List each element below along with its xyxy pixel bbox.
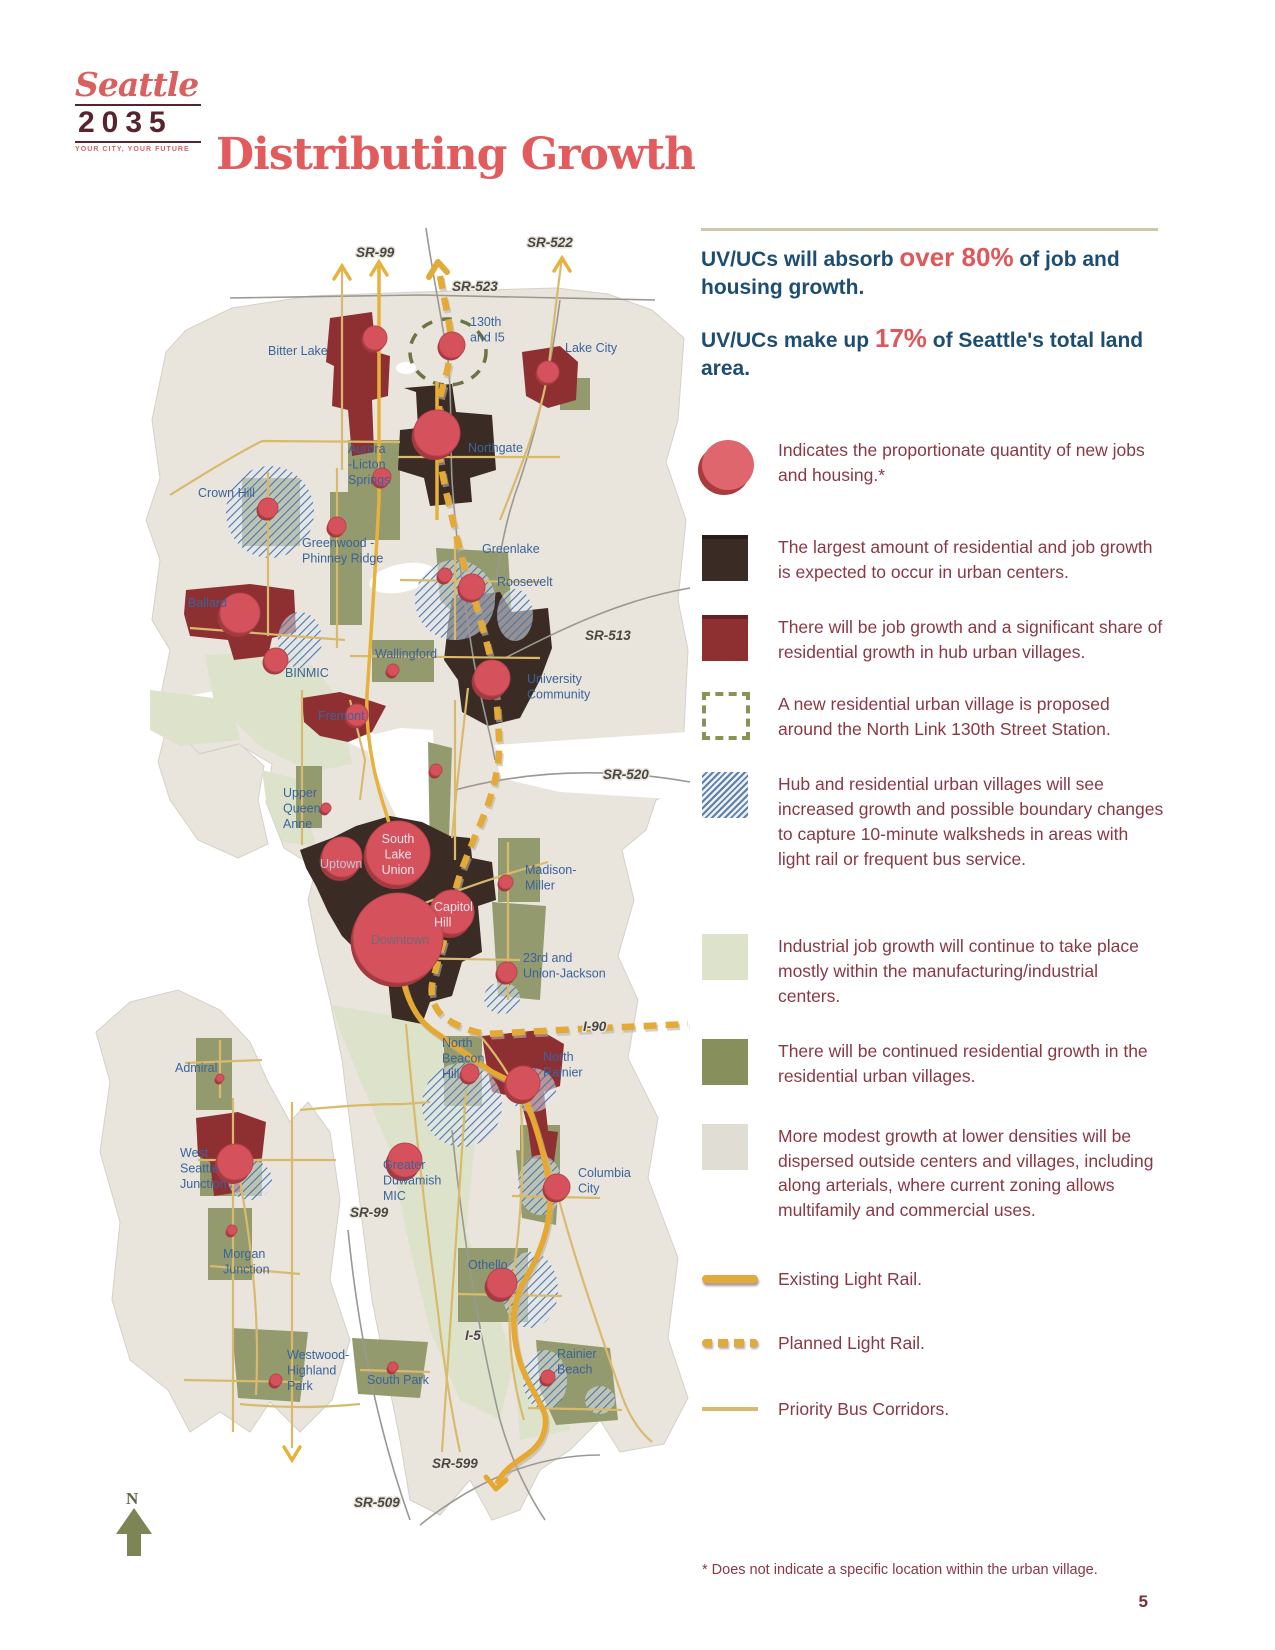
place-label-greenlake: Greenlake bbox=[482, 542, 540, 556]
place-label-binmic: BINMIC bbox=[285, 666, 329, 680]
marker-north-beacon-hill bbox=[461, 1064, 479, 1082]
legend-item: There will be continued residential grow… bbox=[702, 1039, 1164, 1089]
legend-item: Priority Bus Corridors. bbox=[702, 1397, 1164, 1422]
growth-map: Bitter Lake130thand I5Lake CityNorthgate… bbox=[75, 215, 695, 1560]
marker-crown-hill bbox=[258, 498, 278, 518]
marker-roosevelt bbox=[459, 574, 485, 600]
marker-madison-miller bbox=[499, 875, 513, 889]
place-label-admiral: Admiral bbox=[175, 1061, 217, 1075]
map-legend: Indicates the proportionate quantity of … bbox=[702, 438, 1164, 1438]
stat-highlight: over 80% bbox=[899, 242, 1013, 272]
document-page: { "logo": {"brand": "Seattle", "year": "… bbox=[0, 0, 1275, 1650]
legend-label: Hub and residential urban villages will … bbox=[778, 772, 1164, 871]
logo-year: 2035 bbox=[75, 104, 201, 143]
place-label-university-community: UniversityCommunity bbox=[527, 672, 591, 702]
stat-text: UV/UCs will absorb bbox=[701, 248, 899, 271]
logo-brand: Seattle bbox=[75, 68, 201, 101]
legend-item: Indicates the proportionate quantity of … bbox=[702, 438, 1164, 490]
stat-land-area: UV/UCs make up 17% of Seattle's total la… bbox=[701, 325, 1159, 382]
legend-item: A new residential urban village is propo… bbox=[702, 692, 1164, 742]
legend-item: More modest growth at lower densities wi… bbox=[702, 1124, 1164, 1223]
legend-label: More modest growth at lower densities wi… bbox=[778, 1124, 1164, 1223]
road-label-sr-99-0: SR-99 bbox=[356, 245, 395, 260]
marker-23rd-and-union-jackson bbox=[497, 962, 517, 982]
marker-morgan-junction bbox=[227, 1225, 237, 1235]
place-label-lake-city: Lake City bbox=[565, 341, 618, 355]
road-label-sr-599-8: SR-599 bbox=[432, 1456, 478, 1471]
residential-village-swatch bbox=[702, 1039, 748, 1085]
marker-bitter-lake bbox=[363, 326, 387, 350]
legend-item: The largest amount of residential and jo… bbox=[702, 535, 1164, 585]
marker-admiral bbox=[216, 1074, 224, 1082]
marker-130th-and-i5 bbox=[439, 332, 465, 358]
road-label-sr-99-6: SR-99 bbox=[350, 1205, 389, 1220]
stat-text: UV/UCs make up bbox=[701, 329, 875, 352]
priority-bus-icon bbox=[702, 1407, 758, 1411]
place-label-rainier-beach: RainierBeach bbox=[557, 1347, 597, 1377]
stat-highlight: 17% bbox=[875, 323, 927, 353]
marker-rainier-beach bbox=[541, 1370, 555, 1384]
place-label-south-lake-union: SouthLakeUnion bbox=[382, 832, 415, 877]
marker-eastlake bbox=[430, 764, 442, 776]
dispersed-growth-swatch bbox=[702, 1124, 748, 1170]
place-label-greenwood-phinney-ridge: Greenwood -Phinney Ridge bbox=[302, 536, 383, 566]
marker-westwood-highland-park bbox=[270, 1374, 282, 1386]
road-label-sr-522-1: SR-522 bbox=[527, 235, 573, 250]
planned-light-rail-icon bbox=[702, 1339, 758, 1347]
proportional-circle-icon bbox=[702, 440, 754, 490]
marker-lake-city bbox=[537, 361, 559, 383]
legend-label: There will be continued residential grow… bbox=[778, 1039, 1164, 1089]
marker-west-seattle-junction bbox=[217, 1144, 253, 1180]
seattle-2035-logo: Seattle 2035 YOUR CITY, YOUR FUTURE bbox=[75, 68, 201, 153]
marker-university-community bbox=[474, 660, 510, 696]
place-label-ballard: Ballard bbox=[188, 596, 227, 610]
place-label-morgan-junction: MorganJunction bbox=[223, 1247, 270, 1277]
page-title: Distributing Growth bbox=[216, 129, 695, 180]
place-label-bitter-lake: Bitter Lake bbox=[268, 344, 328, 358]
marker-greenwood-phinney-ridge bbox=[328, 517, 346, 535]
existing-light-rail-icon bbox=[702, 1275, 758, 1283]
legend-label: There will be job growth and a significa… bbox=[778, 615, 1164, 665]
road-label-sr-513-3: SR-513 bbox=[585, 628, 631, 643]
marker-upper-queen-anne bbox=[321, 803, 331, 813]
place-label-northgate: Northgate bbox=[468, 441, 523, 455]
place-label-downtown: Downtown bbox=[371, 933, 429, 947]
place-label-othello: Othello bbox=[468, 1258, 508, 1272]
legend-label: A new residential urban village is propo… bbox=[778, 692, 1164, 742]
growth-map-container: Bitter Lake130thand I5Lake CityNorthgate… bbox=[75, 215, 695, 1560]
marker-wallingford bbox=[387, 664, 399, 676]
logo-tagline: YOUR CITY, YOUR FUTURE bbox=[75, 146, 201, 153]
urban-center-swatch bbox=[702, 535, 748, 581]
marker-othello bbox=[487, 1268, 517, 1298]
place-label-south-park: South Park bbox=[367, 1373, 430, 1387]
road-label-sr-509-9: SR-509 bbox=[354, 1495, 400, 1510]
marker-northgate bbox=[414, 410, 460, 456]
stat-absorb: UV/UCs will absorb over 80% of job and h… bbox=[701, 244, 1159, 301]
place-label-aurora-licton-springs: Aurora-LictonSprings bbox=[348, 442, 390, 487]
legend-item: Planned Light Rail. bbox=[702, 1331, 1164, 1356]
marker-north-rainier bbox=[506, 1066, 540, 1100]
road-label-i-5-7: I-5 bbox=[465, 1328, 481, 1343]
proposed-village-swatch bbox=[702, 692, 750, 740]
road-label-sr-520-4: SR-520 bbox=[603, 767, 649, 782]
marker-columbia-city bbox=[544, 1174, 570, 1200]
marker-greenlake bbox=[438, 568, 452, 582]
place-label-uptown: Uptown bbox=[320, 857, 362, 871]
hub-village-swatch bbox=[702, 615, 748, 661]
legend-item: There will be job growth and a significa… bbox=[702, 615, 1164, 665]
legend-label: Existing Light Rail. bbox=[778, 1267, 1164, 1292]
marker-south-park bbox=[388, 1362, 398, 1372]
divider-rule bbox=[701, 228, 1158, 231]
legend-label: The largest amount of residential and jo… bbox=[778, 535, 1164, 585]
key-stats: UV/UCs will absorb over 80% of job and h… bbox=[701, 244, 1159, 407]
page-number: 5 bbox=[1124, 1592, 1148, 1612]
place-label-crown-hill: Crown Hill bbox=[198, 486, 255, 500]
industrial-swatch bbox=[702, 934, 748, 980]
boundary-hatch-swatch bbox=[702, 772, 748, 818]
place-label-130th-and-i5: 130thand I5 bbox=[470, 315, 505, 345]
road-label-sr-523-2: SR-523 bbox=[452, 279, 498, 294]
place-label-wallingford: Wallingford bbox=[375, 647, 437, 661]
legend-item: Existing Light Rail. bbox=[702, 1267, 1164, 1292]
legend-label: Indicates the proportionate quantity of … bbox=[778, 438, 1164, 488]
road-label-i-90-5: I-90 bbox=[583, 1019, 607, 1034]
legend-label: Industrial job growth will continue to t… bbox=[778, 934, 1164, 1009]
compass: N bbox=[116, 1489, 152, 1556]
legend-item: Industrial job growth will continue to t… bbox=[702, 934, 1164, 1009]
footnote: * Does not indicate a specific location … bbox=[702, 1562, 1172, 1578]
north-arrow-icon bbox=[116, 1508, 152, 1556]
legend-label: Priority Bus Corridors. bbox=[778, 1397, 1164, 1422]
place-label-fremont: Fremont bbox=[318, 709, 365, 723]
legend-label: Planned Light Rail. bbox=[778, 1331, 1164, 1356]
place-label-roosevelt: Roosevelt bbox=[497, 575, 553, 589]
legend-item: Hub and residential urban villages will … bbox=[702, 772, 1164, 871]
compass-n-label: N bbox=[126, 1489, 139, 1508]
